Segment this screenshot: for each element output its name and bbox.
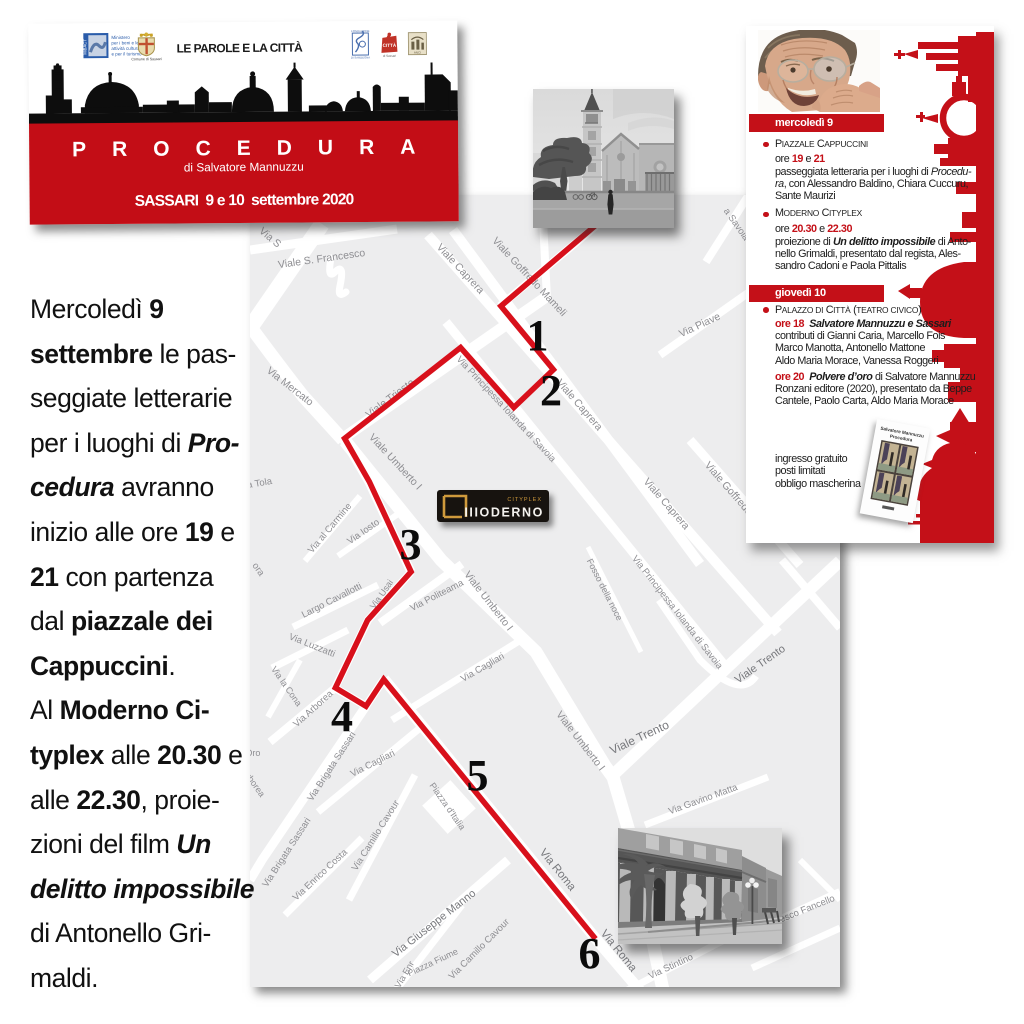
svg-text:Viale S. Francesco: Viale S. Francesco [277, 247, 366, 271]
svg-text:MiBACT: MiBACT [82, 39, 87, 55]
svg-text:Largo Cavallotti: Largo Cavallotti [300, 581, 364, 621]
svg-text:2: 2 [540, 366, 562, 415]
svg-text:ANCI: ANCI [414, 51, 421, 55]
svg-text:Via Camillo Cavour: Via Camillo Cavour [350, 798, 402, 873]
svg-text:Via Cagliari: Via Cagliari [459, 651, 506, 685]
svg-text:IIIODERNO: IIIODERNO [464, 506, 544, 520]
svg-text:Via Principessa Iolanda di Sav: Via Principessa Iolanda di Savoia [629, 554, 725, 672]
svg-text:di Sassari: di Sassari [383, 54, 397, 58]
svg-text:DI SARDEGNA: DI SARDEGNA [351, 56, 370, 60]
svg-text:Comune di Sassari: Comune di Sassari [131, 57, 162, 61]
svg-text:CITYPLEX: CITYPLEX [507, 497, 542, 503]
svg-text:3: 3 [400, 520, 422, 569]
svg-text:CITTÀ: CITTÀ [383, 42, 397, 48]
svg-text:Via Piave: Via Piave [677, 310, 722, 340]
svg-text:Via Gavino Matta: Via Gavino Matta [667, 782, 740, 817]
svg-text:4: 4 [331, 692, 353, 741]
svg-text:5: 5 [467, 751, 489, 800]
svg-text:1: 1 [527, 311, 549, 360]
svg-text:Via Giuseppe Manno: Via Giuseppe Manno [390, 887, 478, 960]
svg-text:Fosso della noce: Fosso della noce [585, 557, 625, 622]
svg-text:Viale Umberto I: Viale Umberto I [461, 569, 515, 633]
svg-text:Via Enrico Costa: Via Enrico Costa [291, 847, 351, 904]
svg-text:Via Cagliari: Via Cagliari [349, 748, 397, 780]
svg-text:6: 6 [579, 929, 601, 978]
